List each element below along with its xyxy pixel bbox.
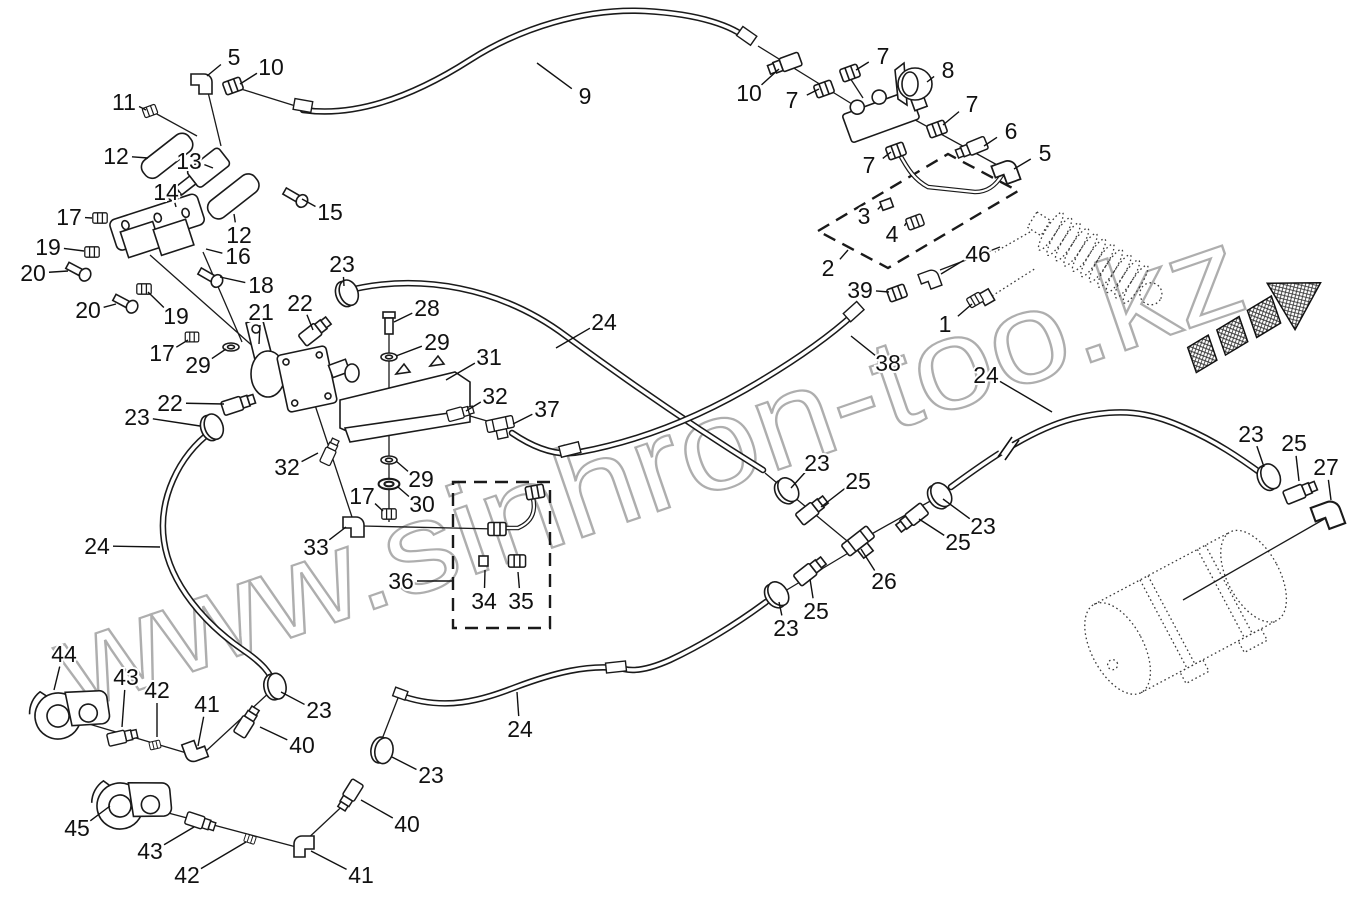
part-callout-29: 29 xyxy=(185,352,211,378)
part-callout-3: 3 xyxy=(858,203,871,229)
leader-line-4 xyxy=(905,223,906,226)
part-callout-34: 34 xyxy=(471,588,497,614)
leader-line-22 xyxy=(186,403,224,404)
part-callout-10: 10 xyxy=(258,54,284,80)
part-callout-7: 7 xyxy=(877,43,890,69)
part-callout-33: 33 xyxy=(303,534,329,560)
part-callout-36: 36 xyxy=(388,568,414,594)
part-callout-23: 23 xyxy=(1238,421,1264,447)
leader-line-42 xyxy=(201,842,246,869)
leader-line-16 xyxy=(206,249,222,253)
leader-line-19 xyxy=(64,248,84,251)
part-callout-46: 46 xyxy=(965,241,991,267)
leader-line-5 xyxy=(207,64,221,76)
part-callout-31: 31 xyxy=(476,344,502,370)
part-callout-11: 11 xyxy=(112,89,136,115)
part-callout-15: 15 xyxy=(317,199,343,225)
part-callout-14: 14 xyxy=(153,179,179,205)
leader-line-25 xyxy=(1296,456,1299,481)
bushing xyxy=(880,198,893,210)
part-callout-23: 23 xyxy=(804,450,830,476)
part-callout-4: 4 xyxy=(886,221,899,247)
leader-line-27 xyxy=(1328,480,1331,500)
part-callout-16: 16 xyxy=(225,243,251,269)
part-callout-23: 23 xyxy=(329,251,355,277)
part-callout-7: 7 xyxy=(786,87,799,113)
leader-line-3 xyxy=(878,206,881,209)
part-callout-5: 5 xyxy=(1039,140,1052,166)
part-callout-32: 32 xyxy=(274,454,300,480)
air-brake-plumbing-diagram: www.sinhron-too.kz xyxy=(0,0,1365,905)
part-callout-13: 13 xyxy=(176,148,202,174)
leader-line-12 xyxy=(132,157,148,158)
leader-line-10 xyxy=(240,73,257,84)
part-callout-24: 24 xyxy=(507,716,533,742)
leader-line-7 xyxy=(943,112,959,125)
part-callout-24: 24 xyxy=(84,533,110,559)
leader-line-19 xyxy=(148,292,164,308)
part-callout-24: 24 xyxy=(973,362,999,388)
part-callout-42: 42 xyxy=(144,677,170,703)
part-callout-23: 23 xyxy=(124,404,150,430)
parts-diagram-page: www.sinhron-too.kz xyxy=(0,0,1365,905)
part-callout-17: 17 xyxy=(149,340,175,366)
part-callout-1: 1 xyxy=(939,311,952,337)
part-callout-17: 17 xyxy=(56,204,82,230)
part-callout-43: 43 xyxy=(113,664,139,690)
part-callout-29: 29 xyxy=(408,466,434,492)
leader-line-25 xyxy=(919,519,944,535)
part-callout-25: 25 xyxy=(803,598,829,624)
part-callout-5: 5 xyxy=(228,44,241,70)
part-callout-20: 20 xyxy=(75,297,101,323)
part-callout-6: 6 xyxy=(1005,118,1018,144)
leader-line-20 xyxy=(49,271,68,272)
leader-line-23 xyxy=(281,692,305,704)
leader-line-23 xyxy=(943,499,970,519)
part-callout-45: 45 xyxy=(64,815,90,841)
part-callout-19: 19 xyxy=(35,234,61,260)
leader-line-23 xyxy=(1257,446,1264,467)
leader-line-28 xyxy=(394,313,412,322)
part-callout-29: 29 xyxy=(424,329,450,355)
leader-line-23 xyxy=(153,419,200,426)
part-callout-25: 25 xyxy=(945,529,971,555)
leader-line-9 xyxy=(537,63,572,89)
part-callout-21: 21 xyxy=(248,299,274,325)
part-callout-22: 22 xyxy=(157,390,183,416)
part-callout-23: 23 xyxy=(773,615,799,641)
part-callout-27: 27 xyxy=(1313,454,1339,480)
leader-line-37 xyxy=(513,414,532,424)
part-callout-7: 7 xyxy=(966,91,979,117)
part-callout-17: 17 xyxy=(349,483,375,509)
part-callout-38: 38 xyxy=(875,350,901,376)
part-callout-30: 30 xyxy=(409,491,435,517)
leader-line-7 xyxy=(856,62,869,70)
leader-line-43 xyxy=(164,827,194,845)
leader-line-2 xyxy=(840,250,848,259)
part-callout-9: 9 xyxy=(579,83,592,109)
part-callout-23: 23 xyxy=(970,513,996,539)
leader-line-40 xyxy=(260,727,287,740)
leader-line-41 xyxy=(311,851,347,869)
leader-line-23 xyxy=(343,277,344,286)
leader-line-29 xyxy=(212,349,226,359)
part-callout-40: 40 xyxy=(289,732,315,758)
gladhand-coupling xyxy=(88,768,176,834)
part-callout-19: 19 xyxy=(163,303,189,329)
part-callout-12: 12 xyxy=(103,143,129,169)
part-callout-2: 2 xyxy=(822,255,835,281)
part-callout-42: 42 xyxy=(174,862,200,888)
valve-bracket xyxy=(340,356,470,442)
part-callout-23: 23 xyxy=(418,762,444,788)
part-callout-24: 24 xyxy=(591,309,617,335)
part-callout-41: 41 xyxy=(348,862,374,888)
part-callout-43: 43 xyxy=(137,838,163,864)
part-callout-41: 41 xyxy=(194,691,220,717)
leader-line-29 xyxy=(396,461,408,471)
leader-line-40 xyxy=(361,800,393,818)
part-callout-32: 32 xyxy=(482,383,508,409)
part-callout-25: 25 xyxy=(1281,430,1307,456)
part-callout-23: 23 xyxy=(306,697,332,723)
part-callout-39: 39 xyxy=(847,277,873,303)
part-callout-7: 7 xyxy=(863,152,876,178)
leader-line-25 xyxy=(810,579,813,598)
part-callout-37: 37 xyxy=(534,396,560,422)
leader-line-46 xyxy=(941,260,964,274)
part-callout-20: 20 xyxy=(20,260,46,286)
leader-line-41 xyxy=(198,717,204,746)
leader-line-5 xyxy=(1014,159,1031,169)
leader-line-32 xyxy=(302,453,318,462)
part-callout-44: 44 xyxy=(51,641,77,667)
part-callout-8: 8 xyxy=(942,57,955,83)
part-callout-35: 35 xyxy=(508,588,534,614)
part-callout-28: 28 xyxy=(414,295,440,321)
leader-line-20 xyxy=(104,304,116,307)
leader-line-24 xyxy=(113,546,160,547)
part-callout-18: 18 xyxy=(248,272,274,298)
part-callout-25: 25 xyxy=(845,468,871,494)
phantom-link-line xyxy=(995,232,1030,252)
bleeder xyxy=(479,556,488,566)
leader-line-29 xyxy=(396,346,422,356)
part-callout-10: 10 xyxy=(736,80,762,106)
diaphragm-cap xyxy=(895,63,932,105)
part-callout-40: 40 xyxy=(394,811,420,837)
part-callout-26: 26 xyxy=(871,568,897,594)
leader-line-24 xyxy=(517,692,519,716)
part-callout-22: 22 xyxy=(287,290,313,316)
leader-line-23 xyxy=(392,757,416,770)
leader-line-17 xyxy=(176,340,188,347)
leader-line-18 xyxy=(220,277,245,283)
bolt xyxy=(383,312,395,334)
leader-line-44 xyxy=(54,667,60,690)
